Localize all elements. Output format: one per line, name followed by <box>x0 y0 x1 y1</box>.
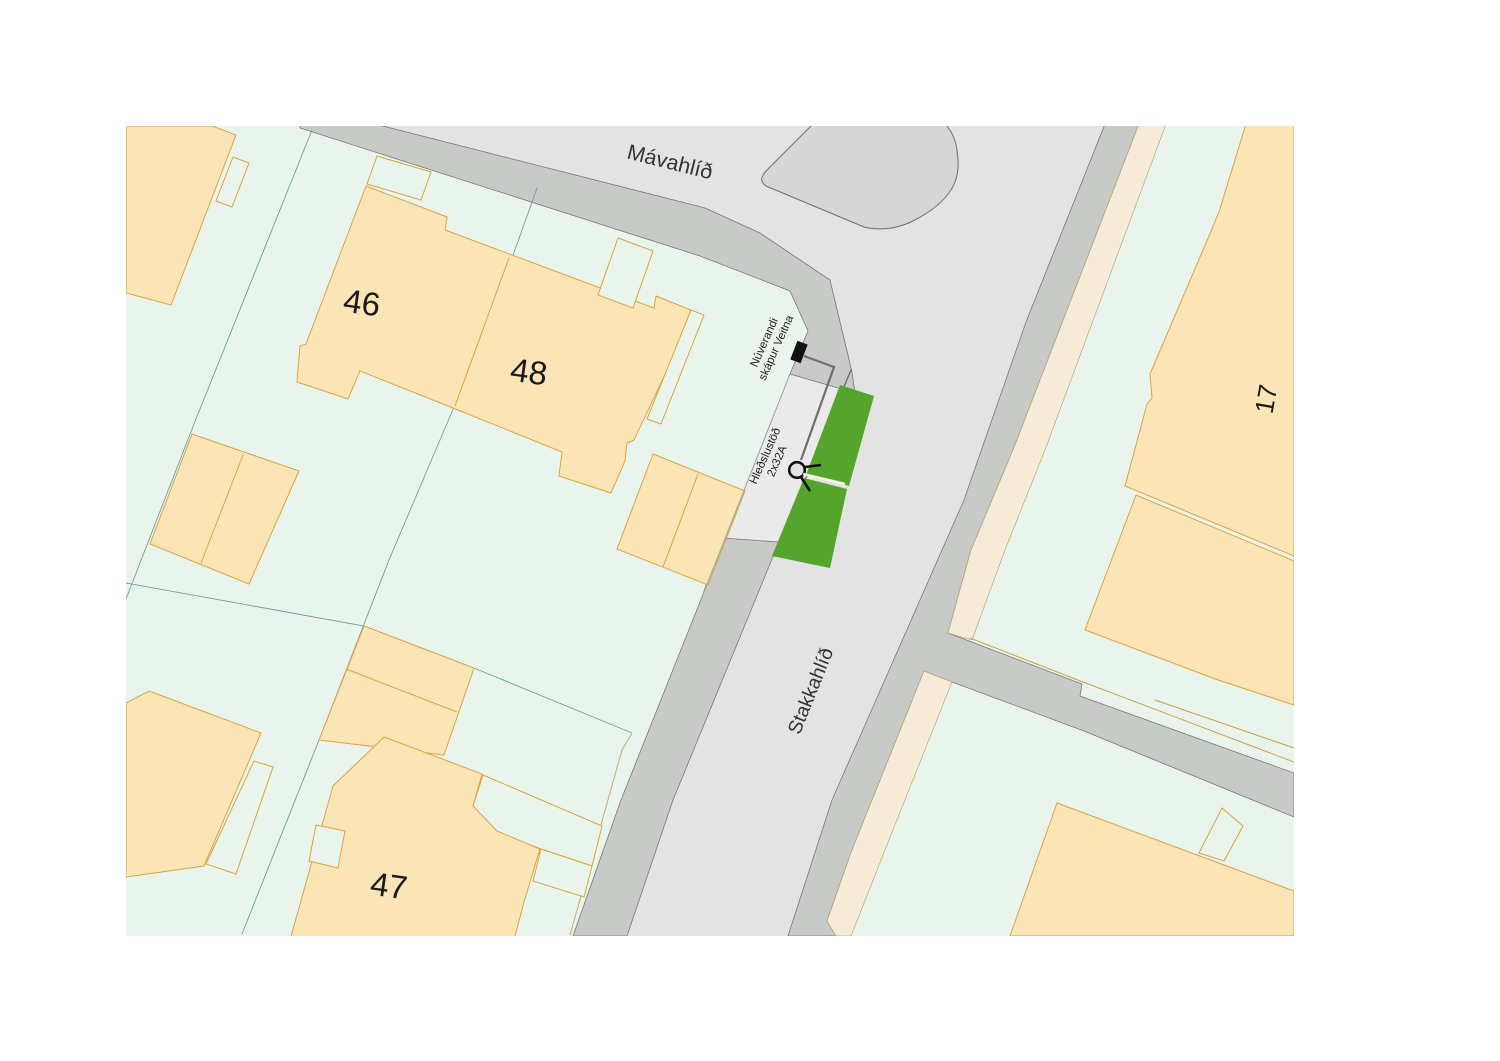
svg-text:17: 17 <box>1249 382 1284 416</box>
svg-text:47: 47 <box>368 865 410 907</box>
svg-text:46: 46 <box>341 282 383 324</box>
svg-text:48: 48 <box>508 351 550 393</box>
